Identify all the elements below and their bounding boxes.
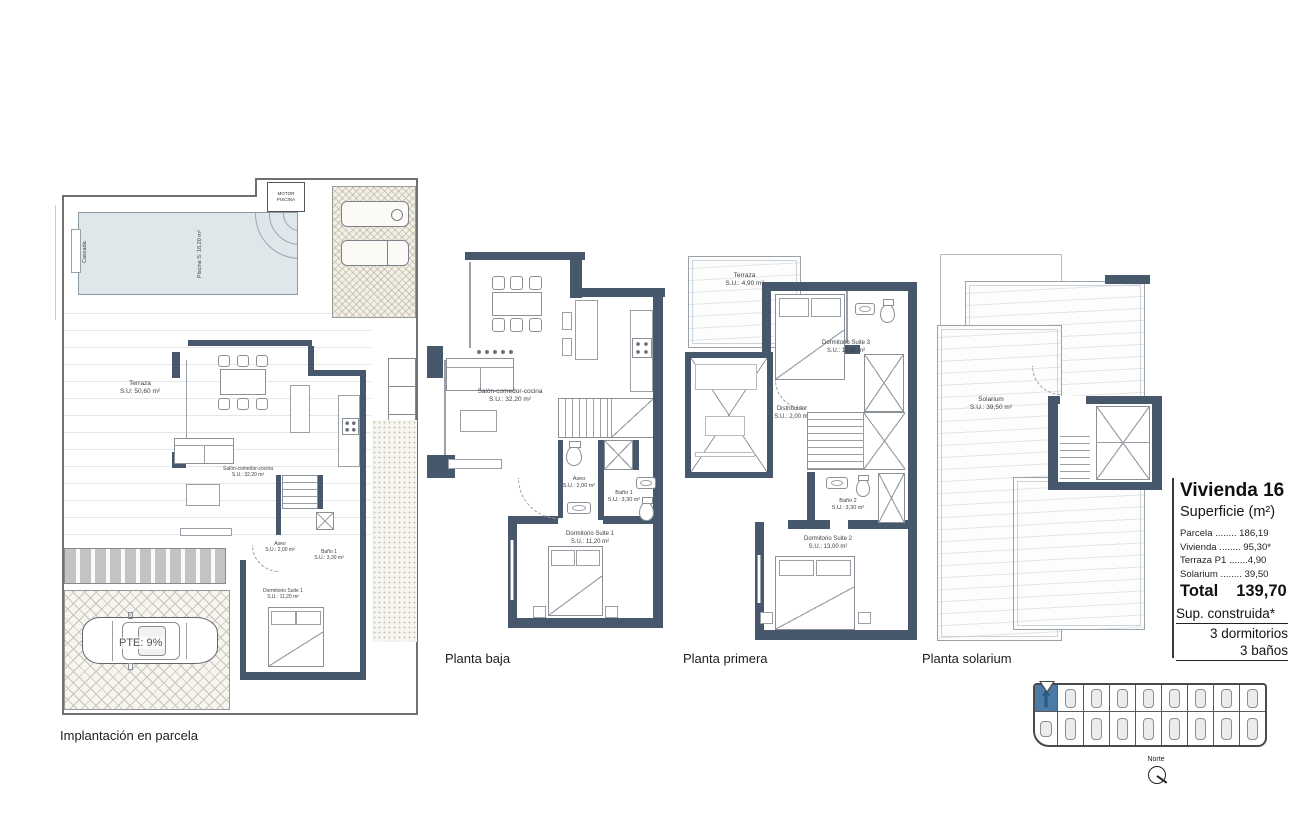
entry-steps bbox=[64, 548, 226, 584]
door-swing-arc bbox=[775, 380, 804, 409]
wall bbox=[360, 376, 366, 680]
sunbed bbox=[341, 240, 409, 266]
floorplan-sheet: Terraza S.U: 50,60 m² Piscina S: 18,20 m… bbox=[0, 0, 1290, 840]
wall bbox=[318, 475, 323, 509]
stairs bbox=[558, 398, 653, 438]
chair bbox=[237, 398, 249, 410]
coffee-table-below-outline bbox=[705, 416, 745, 436]
shower bbox=[864, 354, 904, 412]
room-name: Piscina bbox=[197, 260, 203, 278]
stair-treads bbox=[559, 399, 611, 437]
bath-partition bbox=[846, 291, 848, 343]
unit-footprint-icon bbox=[1040, 721, 1052, 737]
info-panel-divider bbox=[1172, 478, 1174, 658]
total-label: Total bbox=[1180, 582, 1218, 601]
unit-footprint-icon bbox=[1247, 718, 1258, 740]
unit-cell bbox=[1058, 712, 1083, 745]
unit-cell bbox=[1084, 712, 1109, 745]
dining-table bbox=[220, 369, 266, 395]
sink bbox=[826, 477, 848, 489]
unit-column bbox=[1135, 685, 1161, 745]
chair bbox=[237, 355, 249, 367]
wall bbox=[465, 252, 585, 260]
pool-steps-arc bbox=[255, 212, 298, 259]
wall bbox=[188, 340, 312, 346]
room-area: S.U.: 32,20 m² bbox=[445, 396, 575, 404]
room-name: Baño 2 bbox=[822, 498, 874, 505]
room-label-salon: Salón-comedor-cocina S.U.: 32,20 m² bbox=[445, 388, 575, 404]
wall bbox=[788, 520, 830, 529]
stairwell-interior bbox=[1058, 404, 1152, 482]
unit-column bbox=[1083, 685, 1109, 745]
tv-bench bbox=[448, 459, 502, 469]
stool bbox=[562, 338, 572, 356]
room-area: S.U.: 39,50 m² bbox=[962, 404, 1020, 412]
sofa-below-outline bbox=[695, 364, 757, 390]
car-mirror bbox=[128, 612, 133, 619]
dining-set bbox=[218, 355, 268, 411]
stairs bbox=[807, 412, 905, 470]
wall bbox=[762, 282, 915, 291]
door-swing-arc bbox=[252, 545, 279, 572]
toilet bbox=[856, 479, 870, 497]
cascada-label: Cascada bbox=[82, 231, 94, 273]
stove bbox=[632, 338, 652, 358]
room-area: S.U.: 2,00 m² bbox=[558, 483, 600, 490]
room-name: Dormitorio Suite 1 bbox=[558, 531, 622, 539]
planta-primera-caption: Planta primera bbox=[683, 651, 768, 666]
units-strip bbox=[1033, 683, 1267, 747]
stairwell-enclosure bbox=[1048, 396, 1162, 490]
stairs bbox=[282, 475, 318, 509]
unit-footprint-icon bbox=[1169, 689, 1180, 708]
stair-treads bbox=[1060, 430, 1090, 480]
unit-column-highlight bbox=[1035, 685, 1057, 745]
unit-cell bbox=[1058, 685, 1083, 712]
unit-column bbox=[1161, 685, 1187, 745]
unit-footprint-icon bbox=[1143, 689, 1154, 708]
sunbed-pad bbox=[332, 186, 416, 318]
motor-label-line2: PISCINA bbox=[277, 197, 295, 203]
pillow bbox=[811, 298, 842, 317]
nightstand bbox=[533, 606, 546, 618]
unit-footprint-icon bbox=[1091, 718, 1102, 740]
shower bbox=[316, 512, 334, 530]
unit-cell bbox=[1136, 685, 1161, 712]
room-name: Salón-comedor-cocina bbox=[445, 388, 575, 396]
window bbox=[757, 555, 761, 603]
planta-solarium-caption: Planta solarium bbox=[922, 651, 1012, 666]
planta-baja-caption: Planta baja bbox=[445, 651, 510, 666]
unit-footprint-icon bbox=[1195, 718, 1206, 740]
bed bbox=[775, 294, 845, 380]
dining-table bbox=[492, 292, 542, 316]
car-mirror bbox=[128, 663, 133, 670]
unit-column bbox=[1057, 685, 1083, 745]
unit-footprint-icon bbox=[1221, 718, 1232, 740]
unit-footprint-icon bbox=[1143, 718, 1154, 740]
unit-column bbox=[1187, 685, 1213, 745]
surface-rows: Parcela ........ 186,19 Vivienda .......… bbox=[1180, 527, 1271, 581]
bedrooms-note: 3 dormitorios bbox=[1176, 626, 1288, 641]
nightstand bbox=[858, 612, 871, 624]
gravel-strip bbox=[372, 420, 417, 642]
room-label-piscina: Piscina S: 18,20 m² bbox=[197, 225, 215, 283]
room-area: S.U.: 11,20 m² bbox=[250, 594, 316, 600]
wall bbox=[603, 516, 663, 524]
plan-planta-baja: Salón-comedor-cocina S.U.: 32,20 m² Aseo… bbox=[425, 250, 670, 670]
chair bbox=[256, 398, 268, 410]
unit-cell bbox=[1162, 712, 1187, 745]
room-label-bano1-site: Baño 1 S.U.: 3,30 m² bbox=[306, 549, 352, 561]
sink bbox=[567, 502, 591, 514]
info-panel: Vivienda 16 Superficie (m²) Parcela ....… bbox=[1172, 476, 1290, 664]
unit-footprint-icon bbox=[1247, 689, 1258, 708]
sofa bbox=[446, 358, 514, 391]
unit-footprint-icon bbox=[1195, 689, 1206, 708]
car-trunk-line bbox=[186, 623, 187, 659]
wall bbox=[908, 282, 917, 640]
compass-needle bbox=[1156, 775, 1167, 783]
unit-cell bbox=[1188, 685, 1213, 712]
person-head bbox=[391, 209, 403, 221]
bed-fold-line bbox=[269, 632, 323, 666]
room-area: S.U.: 13,00 m² bbox=[790, 544, 866, 552]
toilet bbox=[639, 502, 654, 521]
shower bbox=[604, 440, 633, 470]
unit-title: Vivienda 16 bbox=[1180, 480, 1284, 502]
kitchen-island bbox=[290, 385, 310, 433]
sink bbox=[855, 303, 875, 315]
unit-footprint-icon bbox=[1169, 718, 1180, 740]
unit-cell bbox=[1240, 712, 1265, 745]
total-row: Total 139,70 bbox=[1180, 582, 1287, 601]
pillow bbox=[576, 550, 600, 566]
stool bbox=[562, 312, 572, 330]
window-blinds bbox=[477, 350, 513, 354]
surface-row-terraza: Terraza P1 .......4,90 bbox=[1180, 554, 1271, 568]
unit-column bbox=[1109, 685, 1135, 745]
baths-note: 3 baños bbox=[1176, 643, 1288, 661]
stair-roof-cross bbox=[1096, 406, 1150, 480]
room-name: Solarium bbox=[962, 396, 1020, 404]
bed bbox=[775, 556, 855, 630]
room-name: Terraza bbox=[692, 272, 797, 280]
room-label-suite2: Dormitorio Suite 2 S.U.: 13,00 m² bbox=[790, 536, 866, 551]
unit-cell bbox=[1188, 712, 1213, 745]
stair-diagonal bbox=[611, 399, 653, 437]
plan-planta-primera: Terraza S.U.: 4,90 m² Dormitorio Suite 3 bbox=[680, 250, 925, 670]
pillow bbox=[551, 550, 575, 566]
toilet bbox=[566, 446, 582, 466]
pool: Piscina S: 18,20 m² bbox=[78, 212, 298, 295]
window bbox=[510, 540, 514, 600]
unit-column bbox=[1213, 685, 1239, 745]
stair-mid-landing-line bbox=[1096, 442, 1150, 443]
wall bbox=[573, 288, 665, 297]
bed-fold-line bbox=[549, 576, 602, 615]
unit-cell bbox=[1110, 712, 1135, 745]
total-value: 139,70 bbox=[1236, 582, 1286, 601]
room-name: Dormitorio Suite 3 bbox=[810, 340, 882, 348]
nightstand bbox=[760, 612, 773, 624]
chair bbox=[529, 318, 542, 332]
unit-cell bbox=[1214, 685, 1239, 712]
unit-cell bbox=[1110, 685, 1135, 712]
chair bbox=[256, 355, 268, 367]
door-swing-arc bbox=[518, 478, 559, 519]
plan-planta-solarium: Solarium S.U.: 39,50 m² bbox=[928, 250, 1178, 670]
unit-cell bbox=[1240, 685, 1265, 712]
chair bbox=[218, 355, 230, 367]
unit-footprint-icon bbox=[1117, 689, 1128, 708]
pillow bbox=[296, 611, 321, 625]
unit-cell bbox=[1136, 712, 1161, 745]
pillow bbox=[816, 560, 851, 576]
room-label-solarium: Solarium S.U.: 39,50 m² bbox=[962, 396, 1020, 412]
tv-bench-below-outline bbox=[695, 452, 755, 457]
wall bbox=[276, 475, 281, 535]
neighbor-boundary-line bbox=[55, 205, 56, 320]
dining-set bbox=[492, 276, 542, 332]
chair bbox=[510, 276, 523, 290]
chair bbox=[529, 276, 542, 290]
window bbox=[469, 262, 471, 348]
room-label-suite3: Dormitorio Suite 3 S.U.: 11,80 m² bbox=[810, 340, 882, 355]
coffee-table bbox=[460, 410, 497, 432]
surface-row-solarium: Solarium ........ 39,50 bbox=[1180, 568, 1271, 582]
sofa bbox=[174, 438, 234, 464]
surface-row-parcela: Parcela ........ 186,19 bbox=[1180, 527, 1271, 541]
surface-row-vivienda: Vivienda ........ 95,30* bbox=[1180, 541, 1271, 555]
unit-cell bbox=[1162, 685, 1187, 712]
wall bbox=[755, 630, 917, 640]
room-label-suite1-site: Dormitorio Suite 1 S.U.: 11,20 m² bbox=[250, 588, 316, 600]
wall bbox=[240, 672, 366, 680]
room-label-bano2: Baño 2 S.U.: 3,30 m² bbox=[822, 498, 874, 512]
location-minimap: Norte bbox=[1030, 680, 1290, 795]
wall bbox=[653, 291, 663, 628]
pillow bbox=[779, 560, 814, 576]
bed bbox=[548, 546, 603, 616]
room-area: S: 18,20 m² bbox=[197, 230, 203, 258]
bed bbox=[268, 607, 324, 667]
stair-treads bbox=[808, 413, 863, 469]
wall bbox=[240, 560, 246, 680]
wall bbox=[1105, 275, 1150, 284]
wall bbox=[172, 352, 180, 378]
north-compass-icon bbox=[1148, 766, 1166, 784]
chair bbox=[218, 398, 230, 410]
wall bbox=[807, 472, 815, 522]
slope-label: PTE: 9% bbox=[117, 637, 164, 649]
room-area: S.U.: 3,30 m² bbox=[601, 497, 647, 504]
room-area: S.U.: 3,30 m² bbox=[822, 505, 874, 512]
toilet bbox=[880, 304, 895, 323]
nightstand bbox=[605, 606, 618, 618]
unit-footprint-icon bbox=[1065, 689, 1076, 708]
sink bbox=[636, 477, 656, 489]
stair-diagonal bbox=[863, 413, 905, 469]
chair bbox=[510, 318, 523, 332]
unit-footprint-icon bbox=[1091, 689, 1102, 708]
car-hood-line bbox=[112, 621, 113, 661]
wall bbox=[312, 370, 366, 376]
unit-footprint-icon bbox=[1065, 718, 1076, 740]
chair bbox=[492, 276, 505, 290]
cascada-feature bbox=[71, 229, 81, 273]
tv-bench bbox=[180, 528, 232, 536]
motor-piscina-box: MOTOR PISCINA bbox=[267, 182, 305, 212]
stove bbox=[342, 418, 359, 435]
unit-cell bbox=[1214, 712, 1239, 745]
sunbed-with-person bbox=[341, 201, 409, 227]
room-area: S.U.: 3,30 m² bbox=[306, 555, 352, 561]
unit-cell bbox=[1035, 712, 1057, 745]
room-label-bano1: Baño 1 S.U.: 3,30 m² bbox=[601, 490, 647, 504]
unit-cell bbox=[1084, 685, 1109, 712]
room-name: Baño 1 bbox=[601, 490, 647, 497]
room-name: Aseo bbox=[558, 476, 600, 483]
surface-subtitle: Superficie (m²) bbox=[1180, 504, 1275, 520]
built-surface-note: Sup. construida* bbox=[1176, 606, 1288, 624]
north-label: Norte bbox=[1135, 756, 1177, 763]
bed-fold-line bbox=[776, 587, 854, 629]
door-opening bbox=[1060, 396, 1086, 404]
unit-footprint-icon bbox=[1117, 718, 1128, 740]
pillow bbox=[779, 298, 810, 317]
unit-footprint-icon bbox=[1221, 689, 1232, 708]
site-plan-caption: Implantación en parcela bbox=[60, 728, 198, 743]
shower bbox=[878, 473, 905, 523]
room-label-aseo: Aseo S.U.: 2,00 m² bbox=[558, 476, 600, 490]
pillow bbox=[271, 611, 296, 625]
double-height-void bbox=[685, 352, 773, 478]
room-name: Dormitorio Suite 2 bbox=[790, 536, 866, 544]
wall bbox=[427, 346, 443, 378]
room-label-suite1: Dormitorio Suite 1 S.U.: 11,20 m² bbox=[558, 531, 622, 546]
coffee-table bbox=[186, 484, 220, 506]
unit-column bbox=[1239, 685, 1265, 745]
void-cross bbox=[691, 358, 767, 472]
chair bbox=[492, 318, 505, 332]
site-plan: Terraza S.U: 50,60 m² Piscina S: 18,20 m… bbox=[55, 175, 425, 760]
room-area: S.U.: 11,20 m² bbox=[558, 539, 622, 547]
wall bbox=[633, 440, 639, 470]
wall bbox=[508, 618, 663, 628]
solarium-deck-lower bbox=[1013, 477, 1145, 630]
kitchen-island bbox=[575, 300, 598, 360]
